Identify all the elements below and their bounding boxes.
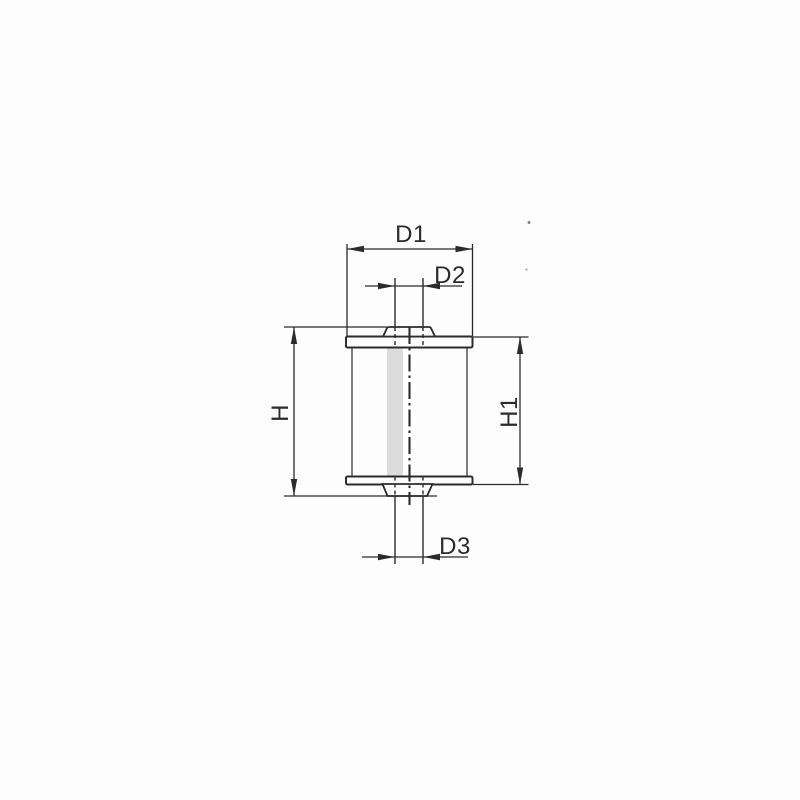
dimension-d2: D2 xyxy=(365,262,466,289)
dimension-label-d3: D3 xyxy=(439,533,471,560)
arrowhead xyxy=(378,283,395,289)
arrowhead xyxy=(291,479,297,496)
pleat-shading xyxy=(387,349,403,476)
dimension-label-h: H xyxy=(267,404,294,422)
arrowhead xyxy=(517,468,523,485)
filter-body xyxy=(346,278,473,564)
bottom-boss xyxy=(383,484,433,496)
dimension-label-d2: D2 xyxy=(434,262,466,289)
arrowhead xyxy=(423,554,440,560)
scanned-technical-drawing-page: D1 D2 D3 H H1 xyxy=(0,0,800,800)
arrowhead xyxy=(347,246,364,252)
arrowhead xyxy=(456,246,473,252)
filter-cartridge-dimension-diagram: D1 D2 D3 H H1 xyxy=(0,0,800,800)
dimension-d3: D3 xyxy=(362,533,471,560)
arrowhead xyxy=(291,327,297,344)
dimension-label-d1: D1 xyxy=(395,221,427,248)
arrowhead xyxy=(378,554,395,560)
scan-speck xyxy=(525,268,527,270)
dimension-label-h1: H1 xyxy=(496,396,523,428)
arrowhead xyxy=(517,337,523,354)
dimension-h1: H1 xyxy=(473,337,529,485)
scan-artifacts xyxy=(525,221,530,271)
scan-speck xyxy=(528,221,531,224)
